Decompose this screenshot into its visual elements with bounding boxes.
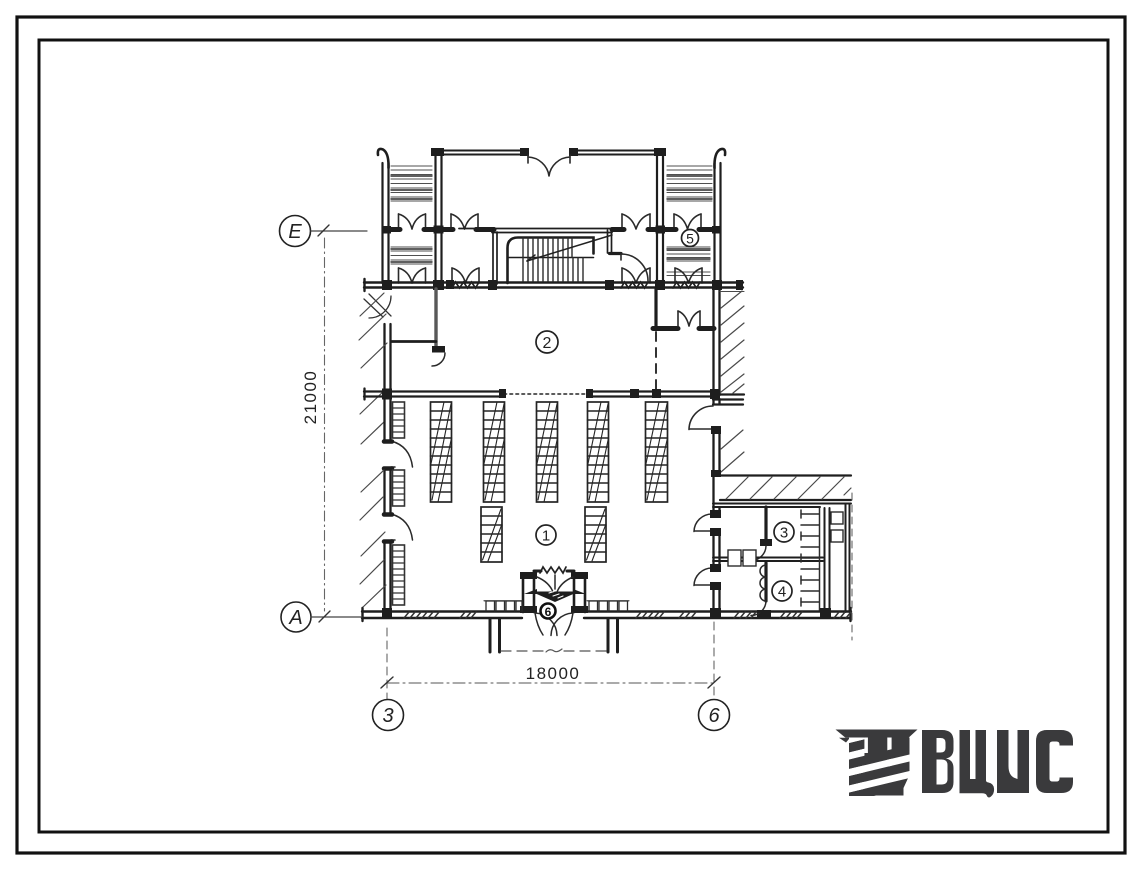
svg-text:2: 2 [543, 335, 552, 352]
svg-text:3: 3 [382, 705, 393, 727]
svg-text:21000: 21000 [301, 370, 320, 425]
svg-text:18000: 18000 [526, 664, 581, 683]
svg-text:5: 5 [686, 231, 694, 247]
svg-text:6: 6 [708, 705, 720, 727]
svg-text:6: 6 [545, 605, 552, 619]
svg-text:Е: Е [288, 221, 302, 243]
svg-text:А: А [288, 607, 302, 629]
svg-text:1: 1 [542, 528, 550, 545]
svg-text:4: 4 [778, 584, 786, 601]
svg-text:3: 3 [780, 525, 788, 542]
